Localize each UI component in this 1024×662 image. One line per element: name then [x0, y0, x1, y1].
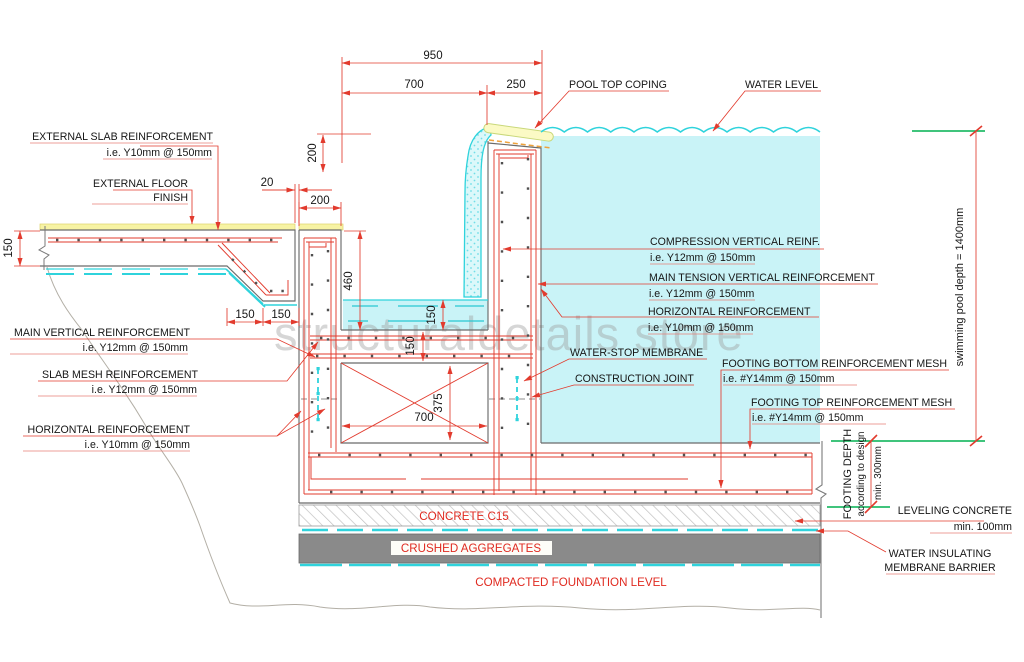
label-horizontal-right-spec: i.e. Y10mm @ 150mm [648, 322, 754, 334]
left-break-line [39, 226, 49, 270]
label-pool-depth: swimming pool depth = 1400mm [954, 208, 966, 367]
label-footing-bottom-mesh-spec: i.e. #Y14mm @ 150mm [723, 373, 835, 385]
label-leveling-concrete-spec: min. 100mm [954, 521, 1012, 533]
label-main-vertical: MAIN VERTICAL REINFORCEMENT [14, 327, 191, 339]
label-external-slab-reinf-spec: i.e. Y10mm @ 150mm [107, 147, 213, 159]
water-level-wave [541, 128, 820, 133]
leveling-concrete-layer [299, 505, 820, 526]
dim-700f: 700 [414, 412, 433, 424]
dim-20: 20 [261, 177, 274, 189]
label-compression-spec: i.e. Y12mm @ 150mm [650, 252, 756, 264]
label-construction-joint: CONSTRUCTION JOINT [575, 373, 694, 385]
dim-150-gslab: 150 [405, 336, 417, 355]
pool-structural-detail-drawing: structuraldetails store [0, 0, 1024, 662]
dim-150-slab: 150 [3, 238, 15, 257]
label-footing-depth-3: min. 300mm [873, 446, 884, 500]
dim-250: 250 [506, 79, 525, 91]
dim-200v: 200 [307, 143, 319, 162]
label-slab-mesh: SLAB MESH REINFORCEMENT [42, 369, 199, 381]
top-extension-lines [342, 50, 542, 163]
label-footing-top-mesh: FOOTING TOP REINFORCEMENT MESH [751, 397, 952, 409]
label-water-insulating-2: MEMBRANE BARRIER [884, 562, 996, 574]
label-water-level: WATER LEVEL [745, 79, 818, 91]
dim-150-a: 150 [235, 309, 254, 321]
label-external-floor-2: FINISH [153, 192, 188, 204]
label-footing-depth-1: FOOTING DEPTH [842, 429, 854, 520]
label-footing-depth-2: according to design [856, 432, 867, 517]
dim-150L-ext [14, 231, 40, 266]
dim-150-b: 150 [271, 309, 290, 321]
crushed-aggregates-layer [299, 534, 820, 563]
label-footing-top-mesh-spec: i.e. #Y14mm @ 150mm [752, 412, 864, 424]
label-crushed-aggregates: CRUSHED AGGREGATES [401, 542, 541, 555]
label-compacted-foundation: COMPACTED FOUNDATION LEVEL [475, 576, 667, 589]
label-water-stop: WATER-STOP MEMBRANE [570, 347, 703, 359]
label-main-tension: MAIN TENSION VERTICAL REINFORCEMENT [649, 272, 875, 284]
leader-horizontal-left-a [277, 411, 301, 436]
label-pool-top-coping: POOL TOP COPING [569, 79, 667, 91]
label-slab-mesh-spec: i.e. Y12mm @ 150mm [92, 384, 198, 396]
leader-water-level [713, 91, 821, 131]
leader-water-insulating [816, 531, 886, 552]
dim-200h: 200 [310, 195, 329, 207]
label-horizontal-left: HORIZONTAL REINFORCEMENT [28, 424, 191, 436]
overflow-waterfall [464, 127, 491, 297]
coping-stone [483, 123, 554, 142]
dimension-labels: 950 700 250 200 200 20 150 150 150 460 1… [3, 50, 526, 424]
dim-375: 375 [433, 393, 445, 412]
label-concrete-c15: CONCRETE C15 [419, 510, 509, 523]
label-main-tension-spec: i.e. Y12mm @ 150mm [649, 288, 755, 300]
external-floor-finish-strip [40, 224, 295, 230]
gutter-wall-finish-strip [299, 224, 343, 230]
label-external-floor-1: EXTERNAL FLOOR [93, 178, 188, 190]
label-leveling-concrete: LEVELING CONCRETE [898, 505, 1012, 517]
dim-950: 950 [423, 50, 442, 62]
footing-key-cross [341, 363, 488, 443]
dim-460: 460 [343, 271, 355, 290]
label-main-vertical-spec: i.e. Y12mm @ 150mm [83, 342, 189, 354]
label-footing-bottom-mesh: FOOTING BOTTOM REINFORCEMENT MESH [722, 358, 947, 370]
footing-mesh [308, 453, 812, 494]
label-horizontal-left-spec: i.e. Y10mm @ 150mm [85, 439, 191, 451]
label-water-insulating-1: WATER INSULATING [889, 548, 992, 560]
label-external-slab-reinf: EXTERNAL SLAB REINFORCEMENT [32, 131, 213, 143]
dim-700: 700 [404, 79, 423, 91]
label-horizontal-right: HORIZONTAL REINFORCEMENT [648, 306, 811, 318]
dim-150-water: 150 [426, 305, 438, 324]
leader-pool-top-coping [535, 91, 669, 128]
label-compression: COMPRESSION VERTICAL REINF. [650, 236, 820, 248]
